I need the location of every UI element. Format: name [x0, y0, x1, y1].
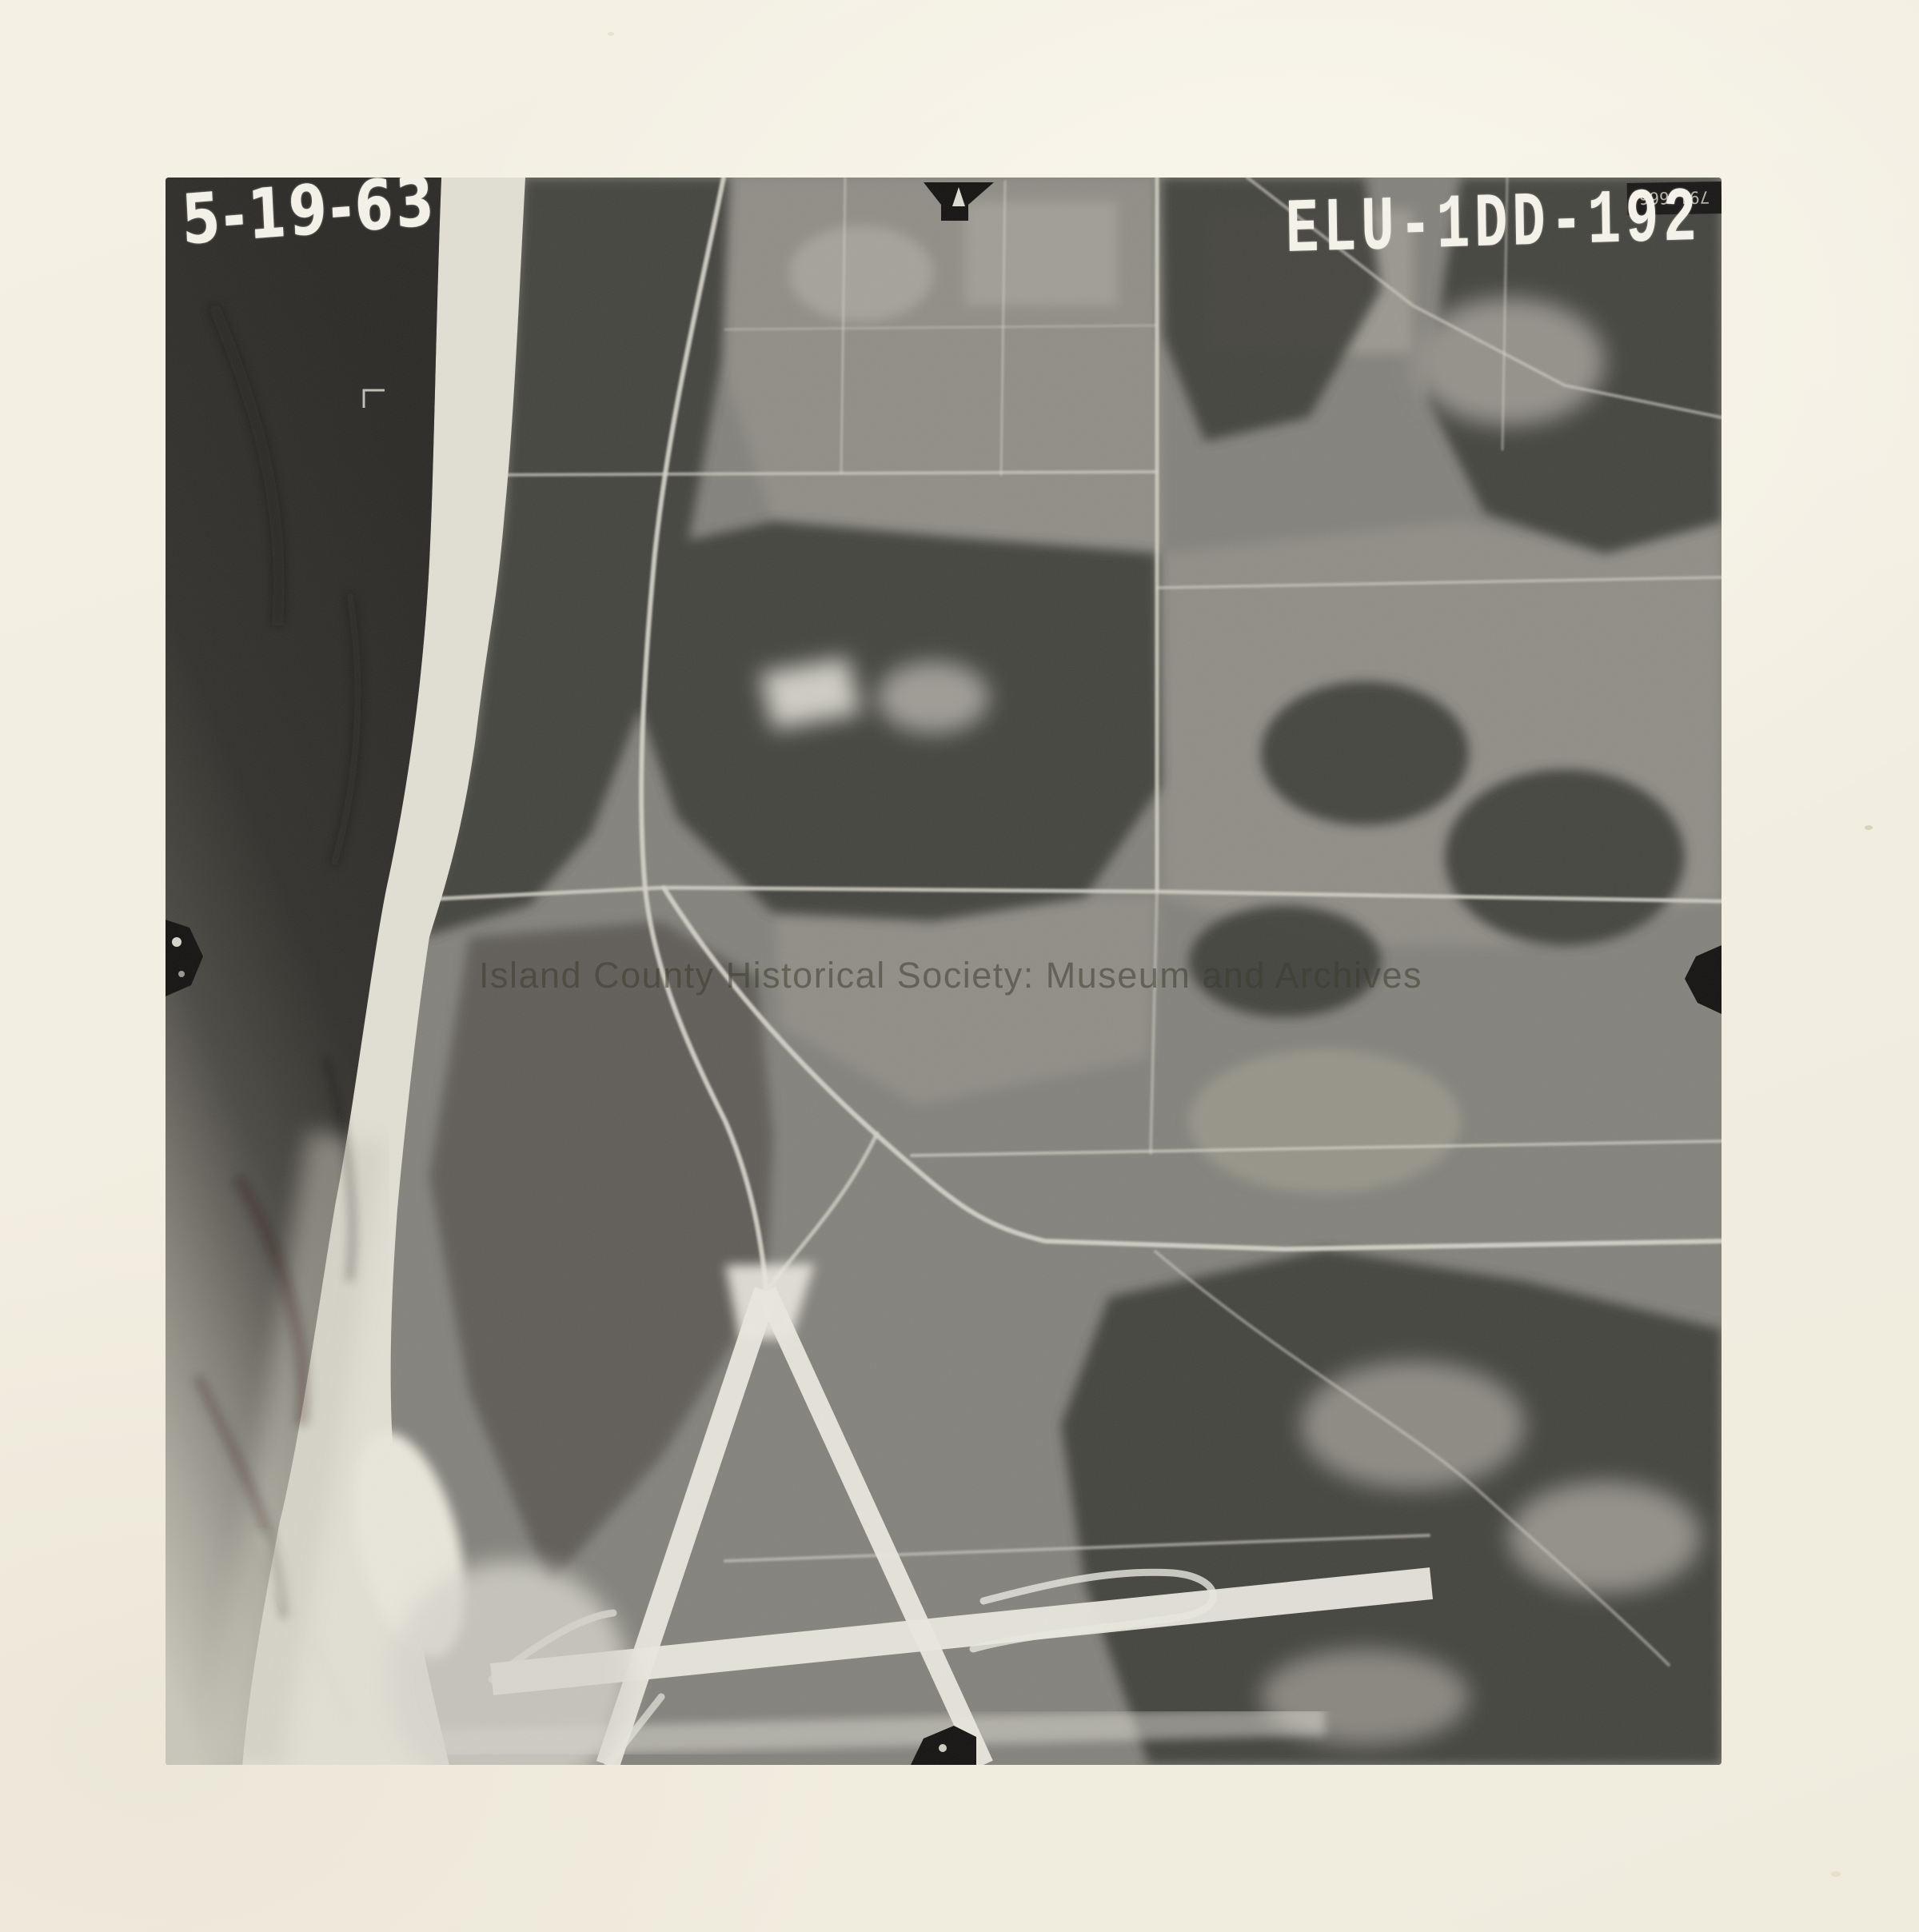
aerial-photo-print: 791,666 5-19-63 ELU-1DD-192 Island Count… — [166, 178, 1722, 1765]
paper-speck — [608, 32, 614, 36]
archive-watermark: Island County Historical Society: Museum… — [479, 955, 1422, 996]
photo-id-annotation: ELU-1DD-192 — [1285, 178, 1702, 274]
paper-speck — [1865, 825, 1873, 830]
scanned-photo-page: { "photo": { "date_annotation": "5-19-63… — [0, 0, 1919, 1932]
paper-speck — [1831, 1871, 1841, 1877]
